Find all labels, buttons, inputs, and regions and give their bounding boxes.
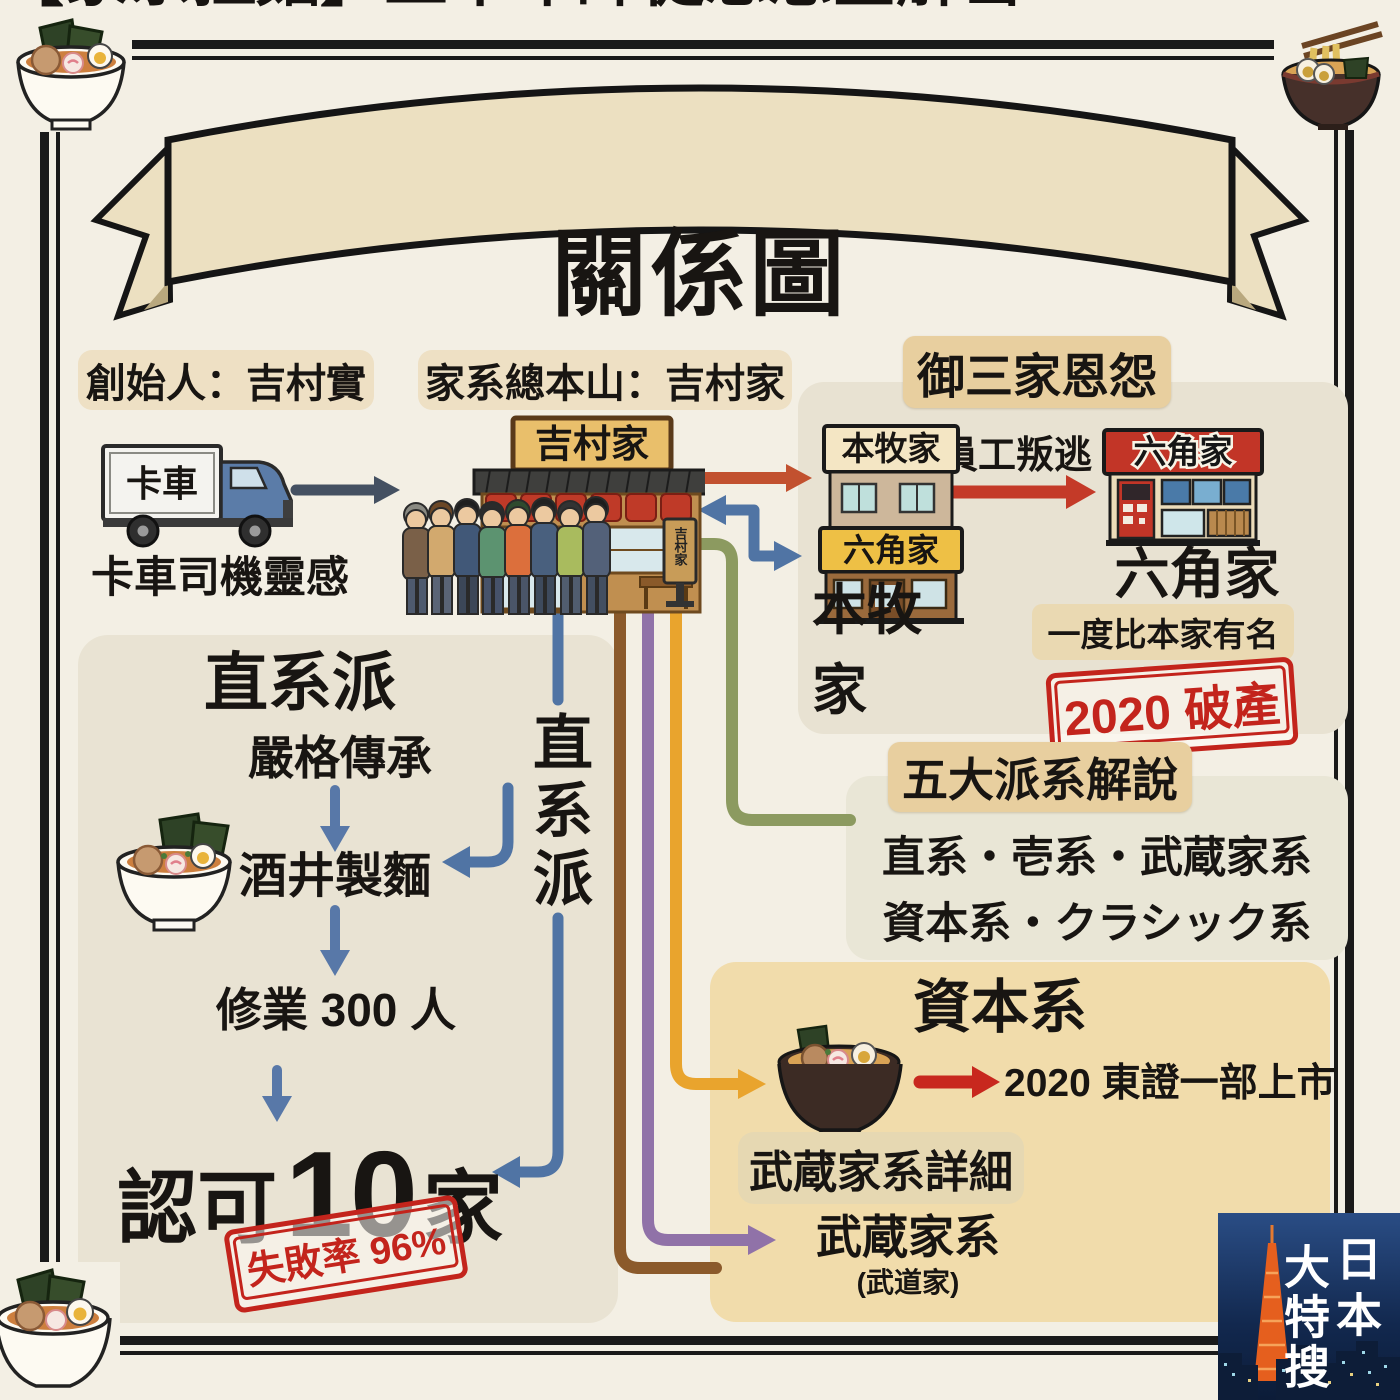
banner-subtitle: 關係圖 (520, 212, 880, 320)
blue-line-lower (518, 918, 558, 1172)
shihon-ramen-bowl-icon (772, 1018, 908, 1148)
musashi-sub-label: (武道家) (808, 1262, 1008, 1300)
chokkei-step1: 嚴格傳承 (210, 726, 470, 784)
watermark-text-right: 日本 (1336, 1235, 1388, 1365)
five-factions-row1: 直系・壱系・武蔵家系 (846, 826, 1348, 882)
chokkei-title: 直系派 (170, 638, 430, 718)
truck-sign-text: 卡車 (126, 463, 198, 504)
gosanke-title: 御三家恩怨 (903, 336, 1171, 408)
five-factions-row2: 資本系・クラシック系 (846, 892, 1348, 948)
corner-bowl-top-left-icon (10, 10, 132, 132)
rokkakuya-sign-text: 六角家 (1134, 433, 1233, 470)
chokkei-step2: 酒井製麵 (225, 840, 445, 902)
five-factions-title: 五大派系解說 (888, 742, 1192, 812)
rokkakuya-note: 一度比本家有名 (1032, 604, 1294, 660)
musashi-label: 武蔵家系 (808, 1206, 1008, 1262)
corner-bowl-top-right-icon (1274, 8, 1392, 130)
bankrupt-stamp-text: 2020 破產 (1054, 665, 1290, 749)
honmoku-label: 本牧家 (812, 614, 972, 676)
chokkei-ramen-bowl-icon (108, 812, 240, 938)
blue-branch (468, 788, 508, 862)
shihon-title: 資本系 (880, 966, 1120, 1038)
corner-bowl-bottom-left-icon (0, 1262, 120, 1400)
shop-stand-sign-text: 吉村家 (673, 527, 688, 567)
honmoku-sign-bottom-text: 六角家 (843, 532, 939, 568)
rokkakuya-label: 六角家 (1112, 538, 1282, 600)
banner-title: 【家系拉麵】五十年師徒恩怨全解密 (0, 0, 1024, 14)
chokkei-step3: 修業 300 人 (170, 976, 502, 1038)
truck-illustration: 卡車 (95, 430, 300, 550)
founder-label: 創始人：吉村實 (78, 350, 374, 410)
honmoku-sign-top-text: 本牧家 (842, 430, 941, 467)
shihon-ipo-text: 2020 東證一部上市 (1004, 1054, 1340, 1106)
chokkei-vertical-label: 直系派 (520, 702, 596, 924)
infographic-page: { "banner": { "title": "【家系拉麵】五十年師徒恩怨全解密… (0, 0, 1400, 1400)
musashi-heading: 武蔵家系詳細 (738, 1132, 1024, 1204)
shop-sign-text: 吉村家 (535, 424, 649, 466)
headquarters-label: 家系總本山：吉村家 (418, 350, 792, 410)
watermark-logo: 日本 大特搜 (1218, 1213, 1400, 1400)
truck-caption: 卡車司機靈感 (90, 548, 350, 600)
yoshimuraya-shop-illustration: 吉村家 (400, 415, 705, 617)
watermark-text-left: 大特搜 (1284, 1243, 1336, 1399)
brown-line (620, 594, 716, 1268)
